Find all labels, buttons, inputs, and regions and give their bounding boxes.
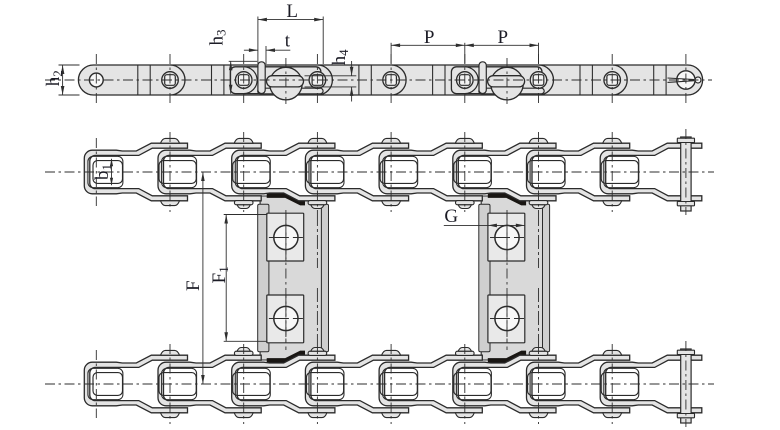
- svg-text:F: F: [183, 280, 204, 291]
- svg-text:P: P: [498, 27, 509, 48]
- svg-text:t: t: [285, 30, 291, 51]
- svg-text:G: G: [444, 206, 458, 227]
- svg-text:L: L: [286, 1, 298, 22]
- svg-text:P: P: [424, 27, 435, 48]
